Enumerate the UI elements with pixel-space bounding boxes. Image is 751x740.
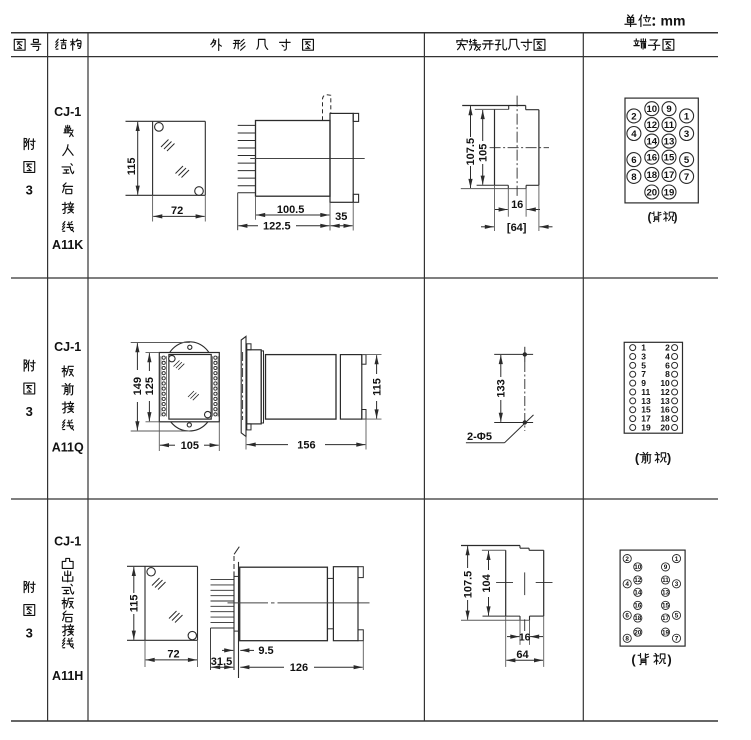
svg-text:20: 20 — [660, 423, 670, 433]
svg-text:20: 20 — [634, 629, 642, 636]
svg-text:104: 104 — [481, 573, 493, 592]
svg-text:156: 156 — [297, 440, 315, 452]
svg-text:107.5: 107.5 — [465, 138, 477, 166]
svg-text:(: ( — [631, 652, 636, 667]
svg-text:31.5: 31.5 — [211, 656, 232, 668]
svg-text:3: 3 — [684, 129, 689, 140]
svg-text:4: 4 — [631, 129, 637, 140]
svg-text:CJ-1: CJ-1 — [54, 105, 81, 119]
svg-text:[64]: [64] — [507, 222, 527, 234]
svg-text:11: 11 — [662, 577, 669, 584]
svg-text:15: 15 — [664, 153, 675, 164]
svg-text:12: 12 — [646, 120, 657, 131]
svg-text:2: 2 — [631, 111, 636, 122]
svg-text:3: 3 — [26, 626, 33, 641]
svg-text:115: 115 — [371, 378, 383, 396]
svg-text:CJ-1: CJ-1 — [54, 534, 81, 548]
svg-text:64: 64 — [516, 649, 529, 661]
svg-text:10: 10 — [646, 104, 657, 115]
svg-text:72: 72 — [171, 205, 183, 217]
svg-text:3: 3 — [26, 183, 33, 198]
svg-text:9.5: 9.5 — [258, 645, 273, 657]
svg-text:15: 15 — [662, 603, 670, 610]
svg-text:107.5: 107.5 — [462, 571, 474, 599]
svg-text:122.5: 122.5 — [263, 221, 291, 233]
svg-text:35: 35 — [335, 211, 347, 223]
svg-text:149: 149 — [132, 377, 144, 395]
svg-text:115: 115 — [128, 595, 140, 613]
svg-text:): ) — [667, 652, 671, 667]
svg-text:12: 12 — [634, 577, 642, 584]
svg-text:5: 5 — [684, 155, 690, 166]
svg-text:6: 6 — [625, 613, 629, 620]
svg-text:14: 14 — [634, 590, 642, 597]
svg-text:133: 133 — [495, 379, 507, 397]
svg-text:2-Φ5: 2-Φ5 — [467, 431, 492, 443]
svg-text:6: 6 — [631, 155, 636, 166]
svg-text:): ) — [667, 451, 671, 466]
svg-text:7: 7 — [675, 636, 679, 643]
svg-text:3: 3 — [675, 581, 679, 588]
svg-text:16: 16 — [511, 199, 523, 211]
svg-text:CJ-1: CJ-1 — [54, 340, 81, 354]
svg-text:125: 125 — [144, 377, 156, 395]
svg-text:1: 1 — [675, 556, 679, 563]
svg-text:9: 9 — [664, 564, 668, 571]
svg-text:11: 11 — [664, 120, 675, 131]
svg-text:A11H: A11H — [52, 669, 83, 683]
svg-text:19: 19 — [641, 423, 651, 433]
svg-text:mm: mm — [661, 13, 686, 29]
svg-text:115: 115 — [126, 158, 138, 176]
svg-text:105: 105 — [477, 144, 489, 162]
svg-text:18: 18 — [646, 170, 657, 181]
svg-text:126: 126 — [290, 662, 308, 674]
svg-text:(: ( — [635, 451, 640, 466]
svg-text:13: 13 — [662, 590, 670, 597]
svg-text:5: 5 — [675, 613, 679, 620]
svg-text:16: 16 — [519, 632, 531, 644]
svg-text:1: 1 — [684, 111, 690, 122]
svg-text:A11K: A11K — [52, 238, 83, 252]
svg-text:16: 16 — [634, 603, 642, 610]
svg-text:16: 16 — [646, 153, 657, 164]
svg-text:8: 8 — [631, 172, 637, 183]
svg-text:9: 9 — [666, 104, 671, 115]
svg-text:3: 3 — [26, 404, 33, 419]
svg-text:19: 19 — [662, 629, 670, 636]
svg-text:72: 72 — [167, 649, 179, 661]
svg-text:100.5: 100.5 — [277, 204, 305, 216]
svg-text:17: 17 — [662, 615, 670, 622]
svg-text:17: 17 — [664, 170, 675, 181]
svg-text:105: 105 — [181, 440, 199, 452]
svg-text:19: 19 — [664, 187, 675, 198]
svg-text:20: 20 — [646, 187, 657, 198]
svg-text:A11Q: A11Q — [52, 441, 84, 455]
svg-text:7: 7 — [684, 172, 689, 183]
svg-text:4: 4 — [625, 581, 629, 588]
svg-text:13: 13 — [664, 137, 675, 148]
svg-text:14: 14 — [646, 137, 657, 148]
svg-text:8: 8 — [625, 636, 629, 643]
svg-text:): ) — [674, 210, 678, 224]
svg-text:(: ( — [648, 210, 652, 224]
svg-text:10: 10 — [634, 564, 642, 571]
svg-text:2: 2 — [625, 556, 629, 563]
svg-text:18: 18 — [634, 615, 642, 622]
